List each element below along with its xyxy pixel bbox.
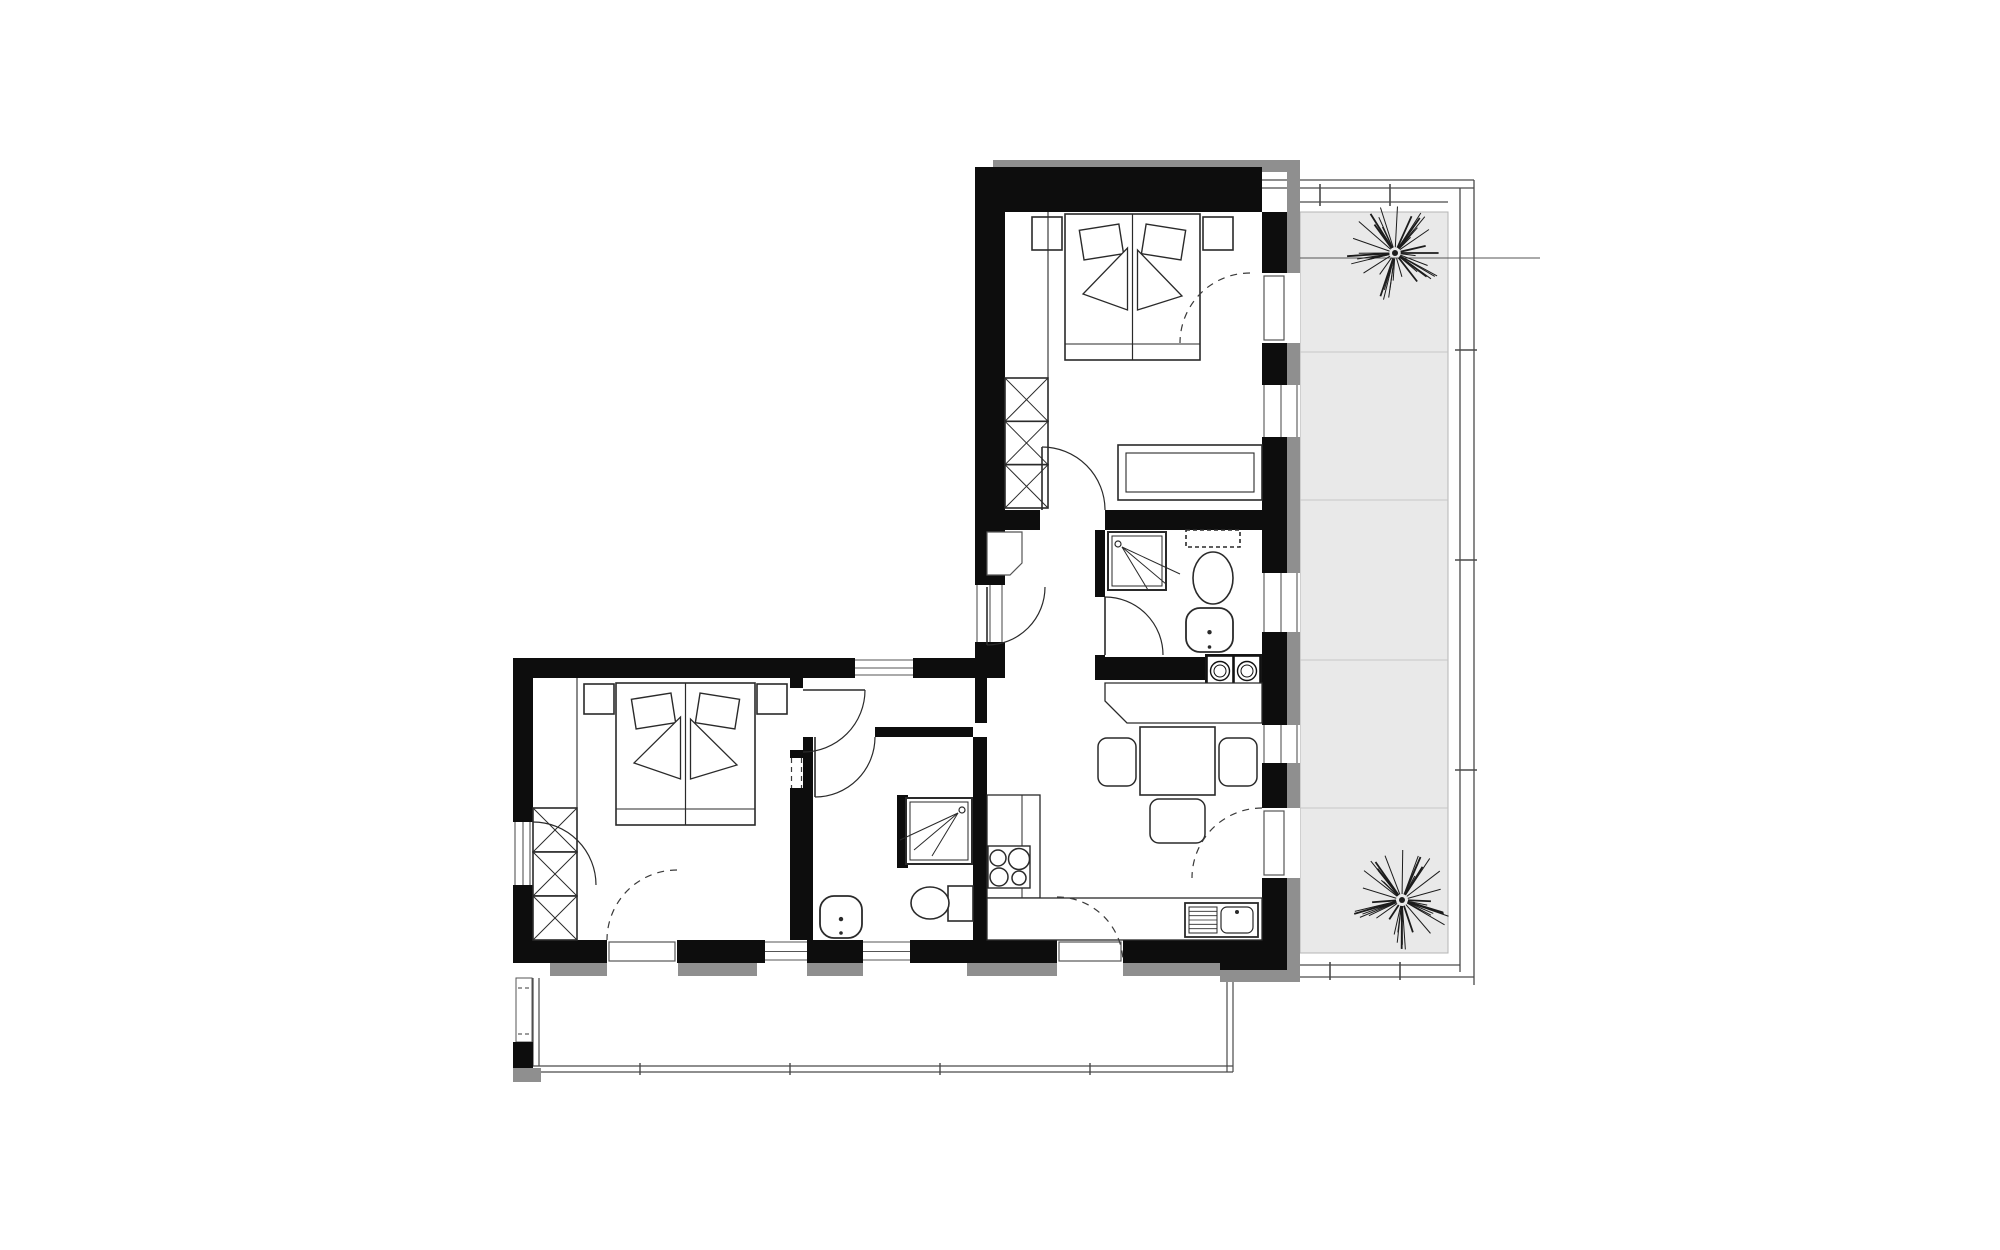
kitchen-sink [1185,903,1258,937]
door-swing-arc [1042,447,1105,510]
wall [975,167,1262,212]
wall [973,737,987,940]
toilet-2 [911,886,973,921]
door-swing-arc [607,870,677,940]
bed-2 [616,683,755,825]
hob [988,846,1030,888]
nightstand [1203,217,1233,250]
wall [807,940,863,963]
sink-1 [1186,608,1233,652]
wall [1262,632,1287,725]
toilet-tank [1186,530,1240,547]
wall [975,678,987,723]
wall [790,678,803,688]
toilet-tank [948,886,973,921]
balcony [513,978,1233,1082]
dining-chair [1098,738,1136,786]
door-slab [1059,942,1121,961]
toilet-1 [1186,530,1240,604]
sink-tap [839,931,843,935]
terrace-floor [1300,212,1448,953]
dining-chair [1219,738,1257,786]
bathroom-2-door [815,737,875,797]
dining-chair [1150,799,1205,843]
wardrobe-2 [533,808,577,940]
wall [513,940,607,963]
wall [1095,657,1205,680]
plant-leaf [1402,850,1403,894]
bed-pillow [1079,224,1123,260]
wall [1262,437,1287,573]
wall [1105,510,1262,530]
shower-1 [1108,532,1180,590]
plant-center [1399,897,1405,903]
wall [803,737,813,940]
entry-niche [987,532,1022,575]
plant-leaf [1408,900,1431,901]
bedroom-1-door [1042,447,1105,510]
wall [677,940,765,963]
sink-2 [820,896,862,938]
kitchen-sink-tap [1235,910,1239,914]
exterior-band [1287,763,1300,808]
door-slab [609,942,675,961]
toilet-bowl [1193,552,1233,604]
wall [1220,940,1287,970]
exterior-band [1287,343,1300,385]
wall [513,658,533,822]
nightstand [584,684,614,714]
wall [875,727,973,737]
nightstand [757,684,787,714]
wall [1262,212,1287,273]
toilet-bowl [911,887,949,919]
door-slab [1264,811,1284,875]
wall [1262,343,1287,385]
exterior-band [807,963,863,976]
wall [975,642,1005,678]
hob-frame [988,846,1030,888]
sink-tap [1208,645,1212,649]
wall [513,658,855,678]
wall [1123,940,1220,963]
exterior-band [1287,437,1300,573]
floor-plan-page [0,0,2000,1250]
balcony-parapet-band [513,1068,541,1082]
door-slab [1264,276,1284,340]
nightstand [1032,217,1062,250]
exterior-band [1220,970,1300,982]
bed-pillow [695,693,739,729]
door-swing-arc [1105,597,1163,655]
exterior-band [1287,878,1300,970]
wall [1262,763,1287,808]
wall [1095,530,1105,597]
wall [975,510,1040,530]
bedroom-2-balcony-door [607,870,677,940]
exterior-band [550,963,607,976]
bathroom-1-door [1105,597,1163,655]
exterior-band [678,963,757,976]
bed-pillow [631,693,675,729]
shower-2 [900,798,972,864]
sink-drain [839,917,843,921]
wall [1262,878,1287,940]
bed-pillow [1141,224,1185,260]
exterior-band [1287,632,1300,725]
exterior-band [1287,172,1300,273]
exterior-band [967,963,1057,976]
shower-tray [906,798,972,864]
kitchenette-counter [1105,683,1262,723]
wall [910,940,1057,963]
exterior-band [1123,963,1220,976]
plant-center [1392,250,1398,256]
dining-table [1140,727,1215,795]
sink-drain [1207,630,1211,634]
door-swing-arc [815,737,875,797]
floor-plan [0,0,2000,1250]
balcony-parapet-wall [513,1042,533,1068]
wall [913,658,975,678]
wall [513,885,533,940]
